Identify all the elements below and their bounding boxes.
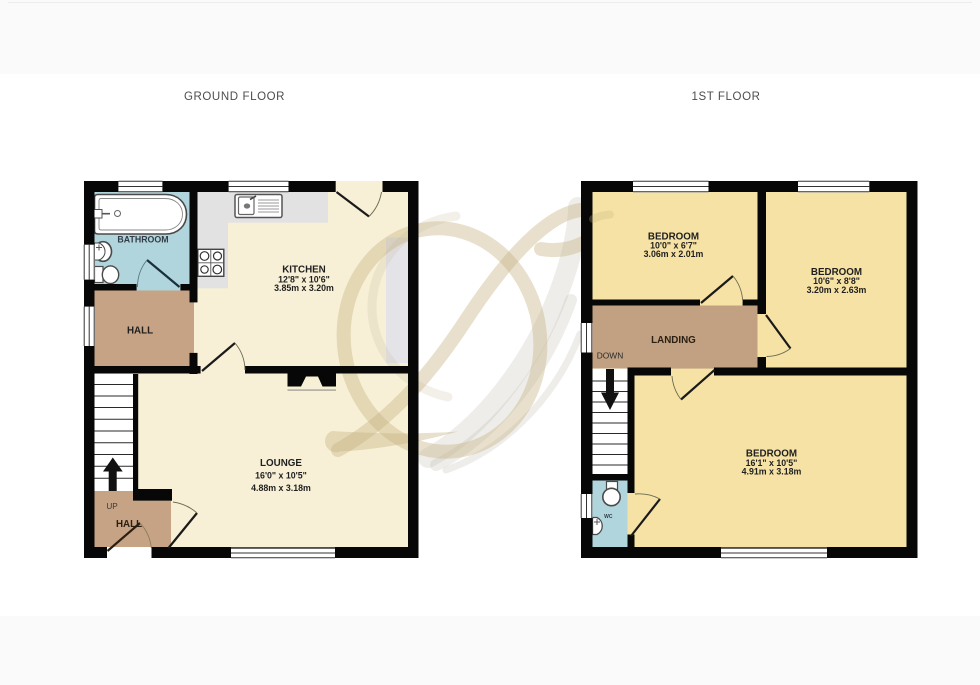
svg-text:3.85m x 3.20m: 3.85m x 3.20m: [274, 283, 334, 293]
svg-text:BATHROOM: BATHROOM: [117, 235, 168, 245]
svg-text:LOUNGE: LOUNGE: [260, 458, 302, 469]
svg-text:LANDING: LANDING: [651, 335, 696, 346]
svg-text:GROUND FLOOR: GROUND FLOOR: [184, 91, 285, 103]
svg-text:DOWN: DOWN: [597, 351, 624, 361]
svg-text:4.91m x 3.18m: 4.91m x 3.18m: [742, 467, 802, 477]
svg-text:4.88m x 3.18m: 4.88m x 3.18m: [251, 483, 311, 493]
svg-text:WC: WC: [604, 514, 613, 520]
svg-text:UP: UP: [106, 502, 118, 511]
svg-text:3.20m x 2.63m: 3.20m x 2.63m: [807, 285, 867, 295]
svg-text:HALL: HALL: [127, 326, 153, 337]
svg-text:1ST FLOOR: 1ST FLOOR: [691, 91, 760, 103]
svg-text:16'0" x 10'5": 16'0" x 10'5": [255, 471, 307, 481]
svg-text:3.06m x 2.01m: 3.06m x 2.01m: [644, 249, 704, 259]
svg-text:HALL: HALL: [116, 519, 142, 530]
